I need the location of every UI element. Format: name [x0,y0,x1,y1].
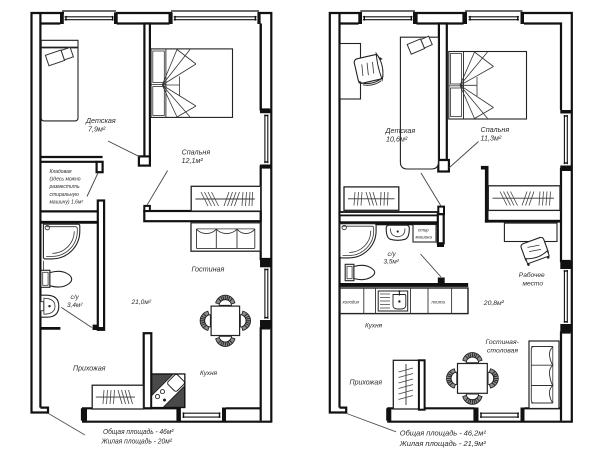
svg-text:(здесь можно: (здесь можно [50,177,81,183]
svg-text:Гостиная: Гостиная [192,265,225,274]
svg-text:плита: плита [432,300,446,305]
svg-text:с/у: с/у [71,294,80,301]
svg-text:10,6м²: 10,6м² [386,135,408,144]
svg-text:Прихожая: Прихожая [73,366,106,373]
svg-text:12,1м²: 12,1м² [182,156,204,165]
svg-text:Общая площадь - 46м²: Общая площадь - 46м² [103,427,174,436]
svg-text:Прихожая: Прихожая [350,380,383,387]
svg-text:Жилая площадь - 20м²: Жилая площадь - 20м² [101,437,173,446]
svg-text:столовая: столовая [487,348,518,355]
svg-text:холодил: холодил [342,300,360,305]
svg-text:место: место [523,281,544,288]
svg-text:Кухня: Кухня [200,370,218,377]
svg-text:Рабочее: Рабочее [519,271,545,279]
svg-text:Жилая площадь - 21,9м²: Жилая площадь - 21,9м² [399,439,487,448]
svg-text:стир: стир [418,228,429,233]
svg-text:7,9м²: 7,9м² [88,125,106,134]
svg-text:Кухня: Кухня [365,323,383,330]
svg-text:3,5м²: 3,5м² [384,259,400,266]
svg-text:Общая площадь - 46,2м²: Общая площадь - 46,2м² [400,429,487,438]
svg-text:Гостиная-: Гостиная- [486,339,520,346]
svg-text:разместить: разместить [49,184,80,190]
svg-text:3,4м²: 3,4м² [67,302,83,309]
svg-text:машину) 1,6м²: машину) 1,6м² [50,200,84,206]
svg-text:20,8м²: 20,8м² [483,300,505,307]
svg-text:машина: машина [416,235,433,240]
svg-text:с/у: с/у [388,251,397,258]
svg-text:стиральную: стиральную [50,192,80,198]
svg-text:11,3м²: 11,3м² [481,134,502,143]
svg-text:21,0м²: 21,0м² [131,299,152,306]
svg-text:Кладовая: Кладовая [50,169,72,175]
